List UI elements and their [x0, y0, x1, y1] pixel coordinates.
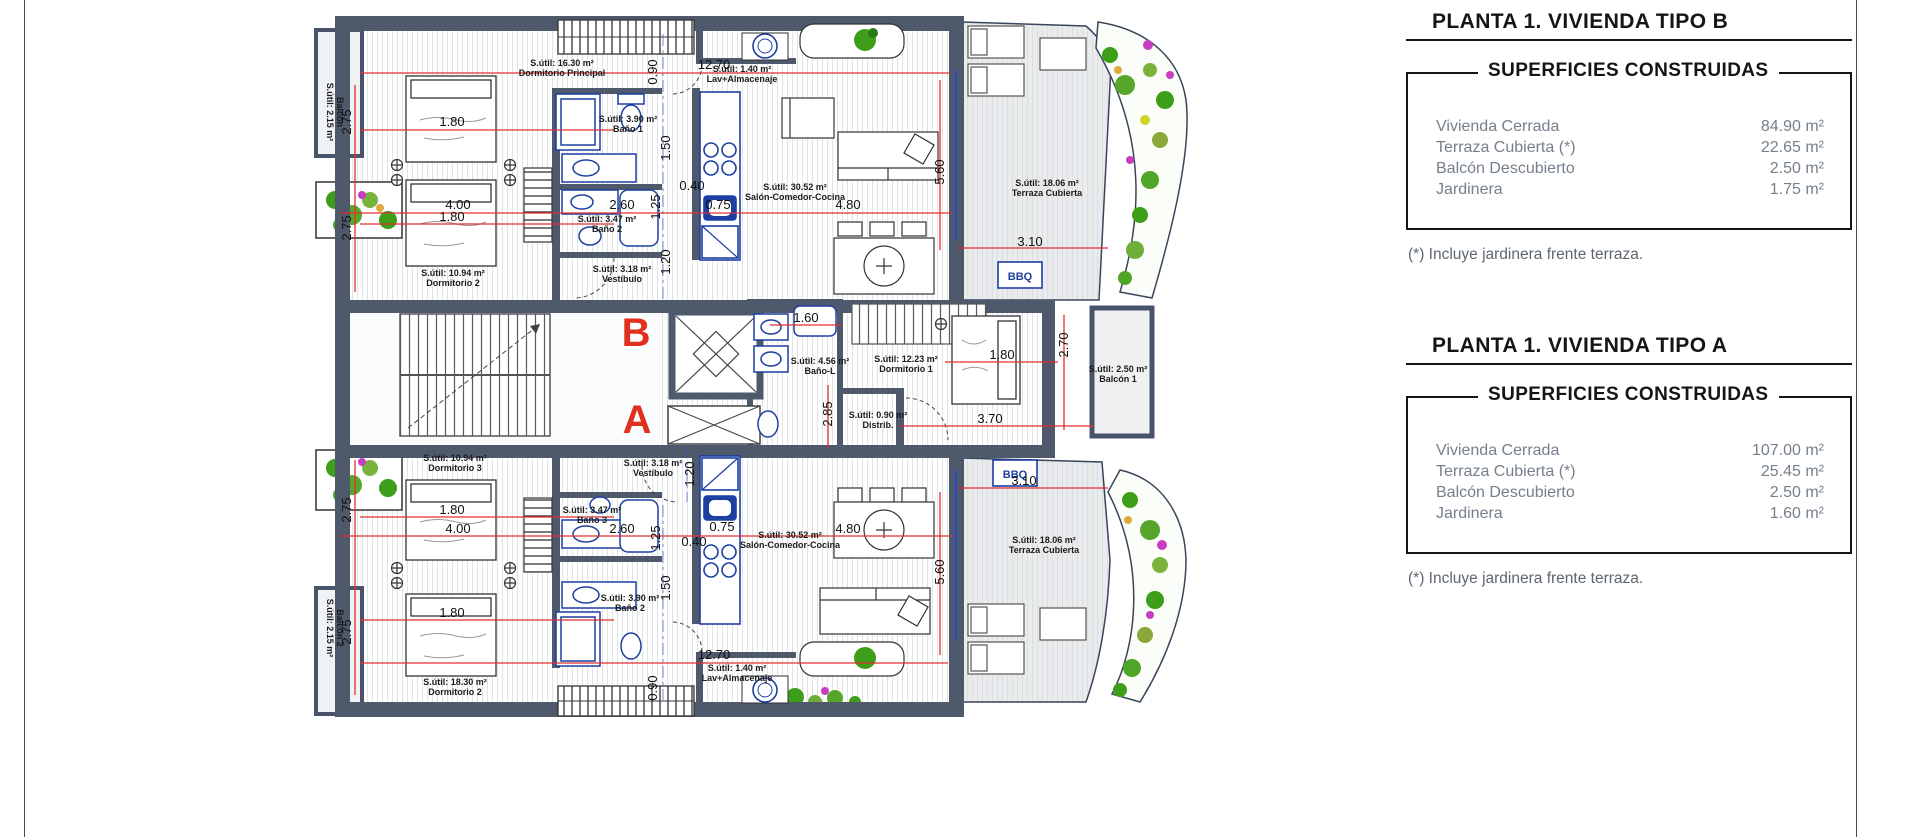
surface-label: Vivienda Cerrada	[1436, 440, 1559, 461]
dimension-label: 1.60	[793, 310, 818, 325]
surface-value: 84.90 m²	[1761, 116, 1824, 137]
surface-row: Jardinera1.75 m²	[1436, 179, 1824, 200]
panel-b-title: PLANTA 1. VIVIENDA TIPO B	[1432, 10, 1852, 34]
unit-letter: B	[622, 311, 651, 355]
surface-label: Balcón Descubierto	[1436, 482, 1575, 503]
dimension-label: 0.75	[705, 197, 730, 212]
dimension-label: 2.75	[339, 109, 354, 134]
panel-a-rows: Vivienda Cerrada107.00 m²Terraza Cubiert…	[1436, 440, 1824, 524]
panel-a-rule	[1406, 363, 1852, 365]
dimension-label: 3.10	[1017, 234, 1042, 249]
surface-row: Jardinera1.60 m²	[1436, 503, 1824, 524]
surface-value: 107.00 m²	[1752, 440, 1824, 461]
room-label: S.útil: 18.30 m²Dormitorio 2	[423, 677, 487, 697]
dimension-label: 2.70	[1056, 332, 1071, 357]
panel-b-header: SUPERFICIES CONSTRUIDAS	[1478, 60, 1779, 82]
surface-label: Vivienda Cerrada	[1436, 116, 1559, 137]
surface-label: Jardinera	[1436, 503, 1503, 524]
dimension-label: 2.75	[339, 215, 354, 240]
panel-a-box: SUPERFICIES CONSTRUIDAS Vivienda Cerrada…	[1406, 396, 1852, 554]
dimension-label: 0.90	[645, 675, 660, 700]
surface-label: Jardinera	[1436, 179, 1503, 200]
sheet-border-right	[1856, 0, 1857, 837]
panel-tipo-a: PLANTA 1. VIVIENDA TIPO A SUPERFICIES CO…	[1406, 330, 1852, 588]
panel-a-footnote: (*) Incluye jardinera frente terraza.	[1408, 570, 1852, 588]
panel-a-header: SUPERFICIES CONSTRUIDAS	[1478, 384, 1779, 406]
room-label: S.útil: 18.06 m²Terraza Cubierta	[1009, 535, 1080, 555]
dimension-label: 1.80	[439, 605, 464, 620]
dimension-label: 0.75	[709, 519, 734, 534]
dimension-label: 0.40	[679, 178, 704, 193]
dimension-label: 2.85	[820, 401, 835, 426]
dimension-label: 2.75	[339, 619, 354, 644]
surface-value: 2.50 m²	[1770, 158, 1824, 179]
dimension-label: 2.75	[339, 497, 354, 522]
dimension-label: 1.50	[658, 575, 673, 600]
surface-value: 1.60 m²	[1770, 503, 1824, 524]
room-label: S.útil: 16.30 m²Dormitorio Principal	[519, 58, 606, 78]
surface-row: Terraza Cubierta (*)22.65 m²	[1436, 137, 1824, 158]
surface-row: Vivienda Cerrada84.90 m²	[1436, 116, 1824, 137]
room-label: S.útil: 10.94 m²Dormitorio 3	[423, 453, 487, 473]
dimension-label: 1.25	[648, 194, 663, 219]
surface-value: 2.50 m²	[1770, 482, 1824, 503]
surface-row: Vivienda Cerrada107.00 m²	[1436, 440, 1824, 461]
dimension-label: 0.90	[645, 59, 660, 84]
floor-plan: BBQBBQ S.útil: 16.30 m²Dormitorio Princi…	[0, 0, 1200, 740]
kitchen-b	[700, 92, 740, 260]
dimension-label: 1.80	[989, 347, 1014, 362]
dimension-label: 0.40	[681, 534, 706, 549]
panel-b-footnote: (*) Incluye jardinera frente terraza.	[1408, 246, 1852, 264]
bbq-label: BBQ	[1008, 271, 1033, 283]
dimension-label: 5.60	[932, 159, 947, 184]
panel-a-title: PLANTA 1. VIVIENDA TIPO A	[1432, 334, 1852, 358]
dimension-label: 4.80	[835, 521, 860, 536]
dimension-label: 1.20	[682, 461, 697, 486]
panel-tipo-b: PLANTA 1. VIVIENDA TIPO B SUPERFICIES CO…	[1406, 6, 1852, 264]
panel-b-box: SUPERFICIES CONSTRUIDAS Vivienda Cerrada…	[1406, 72, 1852, 230]
surface-label: Balcón Descubierto	[1436, 158, 1575, 179]
dimension-label: 1.25	[648, 525, 663, 550]
surface-row: Terraza Cubierta (*)25.45 m²	[1436, 461, 1824, 482]
panel-b-rows: Vivienda Cerrada84.90 m²Terraza Cubierta…	[1436, 116, 1824, 200]
dimension-label: 1.20	[658, 249, 673, 274]
surface-row: Balcón Descubierto2.50 m²	[1436, 482, 1824, 503]
surface-label: Terraza Cubierta (*)	[1436, 461, 1576, 482]
room-label: S.útil: 12.23 m²Dormitorio 1	[874, 354, 938, 374]
room-label: S.útil: 18.06 m²Terraza Cubierta	[1012, 178, 1083, 198]
dimension-label: 1.50	[658, 135, 673, 160]
dimension-label: 3.70	[977, 411, 1002, 426]
dimension-label: 2.60	[609, 197, 634, 212]
surface-row: Balcón Descubierto2.50 m²	[1436, 158, 1824, 179]
dimension-label: 12.70	[698, 57, 731, 72]
surface-value: 25.45 m²	[1761, 461, 1824, 482]
dimension-label: 12.70	[698, 647, 731, 662]
dimension-label: 1.80	[439, 502, 464, 517]
dimension-label: 1.80	[439, 114, 464, 129]
drawing-sheet: BBQBBQ S.útil: 16.30 m²Dormitorio Princi…	[0, 0, 1920, 837]
surface-value: 22.65 m²	[1761, 137, 1824, 158]
surface-label: Terraza Cubierta (*)	[1436, 137, 1576, 158]
dimension-label: 4.80	[835, 197, 860, 212]
room-label: S.útil: 10.94 m²Dormitorio 2	[421, 268, 485, 288]
unit-letter: A	[623, 398, 652, 442]
room-label: S.útil: 1.40 m²Lav+Almacenaje	[702, 663, 773, 683]
surface-value: 1.75 m²	[1770, 179, 1824, 200]
dimension-label: 4.00	[445, 521, 470, 536]
dimension-label: 3.10	[1011, 473, 1036, 488]
dimension-label: 1.80	[439, 209, 464, 224]
dimension-label: 5.60	[932, 559, 947, 584]
panel-b-rule	[1406, 39, 1852, 41]
dimension-label: 2.60	[609, 521, 634, 536]
